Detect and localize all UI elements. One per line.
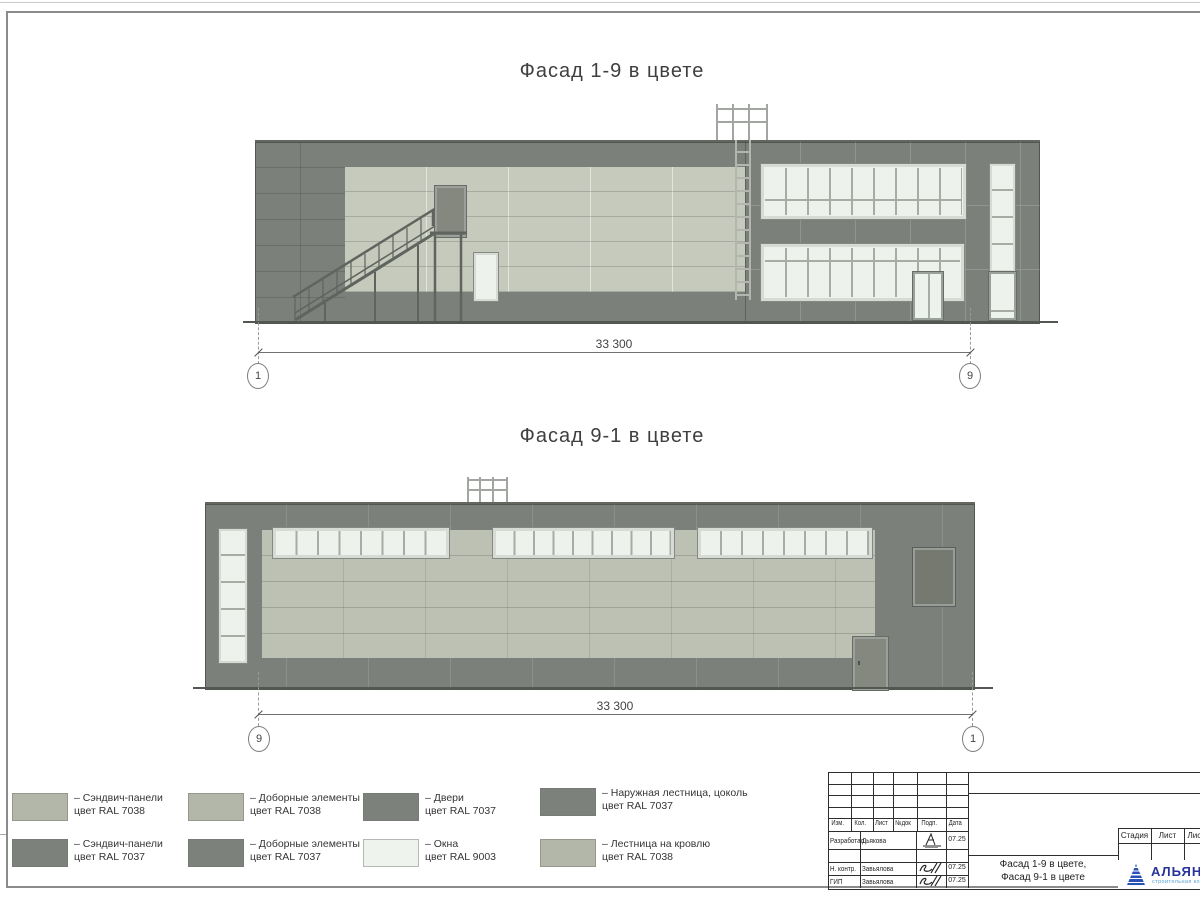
logo-pyramid-icon (1127, 864, 1145, 885)
name: Завьялова (862, 864, 893, 873)
facade1-corner-door (989, 272, 1016, 320)
ground-line (243, 321, 1058, 323)
legend-item: – Сэндвич-панелицвет RAL 7038 (12, 790, 187, 830)
role: ГИП (830, 877, 842, 886)
legend-item: – Доборные элементыцвет RAL 7038 (188, 790, 363, 830)
facade2-ribbon-window-1 (272, 527, 450, 559)
company-logo: АЛЬЯНС строительная компания (1118, 860, 1200, 888)
signature-icon (918, 862, 945, 874)
roof-railing (467, 477, 508, 502)
legend-swatch (540, 788, 596, 816)
axis-extension (972, 672, 973, 726)
axis-marker-9: 9 (248, 726, 270, 752)
legend-item: – Окнацвет RAL 9003 (363, 836, 538, 876)
external-staircase (285, 175, 470, 325)
col-ndok: №док (893, 820, 913, 827)
roof-railing (716, 104, 768, 141)
legend-item: – Лестница на кровлюцвет RAL 7038 (540, 836, 780, 876)
stage-header-list: Лист (1151, 831, 1184, 840)
legend-swatch (188, 793, 244, 821)
logo-subtitle: строительная компания (1152, 879, 1200, 885)
facade2-door (853, 637, 888, 690)
signature-icon (918, 875, 945, 887)
col-data: Дата (946, 820, 964, 827)
facade1-entrance-door (913, 272, 943, 320)
stage-header-listov: Листов (1184, 831, 1200, 840)
role: Разработал (830, 836, 864, 845)
drawing-sheet: Фасад 1-9 в цвете (0, 0, 1200, 900)
document-title: Фасад 1-9 в цвете, Фасад 9-1 в цвете (968, 858, 1118, 884)
titleblock-left-table: Изм. Кол. Лист №док Подп. Дата Разработа… (828, 772, 968, 888)
role: Н. контр. (830, 864, 856, 873)
axis-extension (258, 308, 259, 364)
legend-swatch (540, 839, 596, 867)
axis-marker-1: 1 (247, 363, 269, 389)
ground-line (193, 687, 993, 689)
legend-item: – Дверицвет RAL 7037 (363, 790, 538, 830)
col-podp: Подп. (917, 820, 941, 827)
col-izm: Изм. (828, 820, 847, 827)
axis-extension (970, 308, 971, 364)
facade1-upper-ribbon-window (760, 163, 967, 220)
date: 07.25 (946, 877, 968, 884)
legend-swatch (12, 793, 68, 821)
legend-item: – Доборные элементыцвет RAL 7037 (188, 836, 363, 876)
facade2-right-panel (913, 548, 955, 606)
facade1-dimension: 33 300 (464, 337, 764, 351)
facade2-ribbon-window-2 (492, 527, 675, 559)
legend-item: – Сэндвич-панелицвет RAL 7037 (12, 836, 187, 876)
axis-extension (258, 672, 259, 726)
axis-marker-9: 9 (959, 363, 981, 389)
name: Завьялова (862, 877, 893, 886)
logo-name: АЛЬЯНС (1151, 864, 1200, 879)
facade2-title: Фасад 9-1 в цвете (452, 425, 772, 448)
facade2-ribbon-window-3 (697, 527, 873, 559)
dimension-line (258, 352, 970, 353)
date: 07.25 (946, 836, 968, 843)
facade1-corner-strip-window (989, 163, 1016, 273)
legend-item: – Наружная лестница, цокольцвет RAL 7037 (540, 785, 780, 825)
axis-marker-1: 1 (962, 726, 984, 752)
name: Дьякова (862, 836, 886, 845)
col-list: Лист (873, 820, 890, 827)
legend-swatch (12, 839, 68, 867)
col-kol: Кол. (851, 820, 869, 827)
paper-edge-line (0, 2, 1200, 3)
facade1-small-window (473, 252, 499, 302)
date: 07.25 (946, 864, 968, 871)
margin-tick (0, 834, 6, 835)
legend-swatch (188, 839, 244, 867)
signature-icon (920, 832, 944, 848)
facade1-title: Фасад 1-9 в цвете (452, 60, 772, 83)
dimension-line (258, 714, 972, 715)
legend-swatch (363, 839, 419, 867)
legend-swatch (363, 793, 419, 821)
stage-header-stadia: Стадия (1118, 831, 1151, 840)
facade2-dimension: 33 300 (465, 699, 765, 713)
roof-ladder (735, 140, 751, 300)
facade2-left-strip-window (218, 528, 248, 664)
